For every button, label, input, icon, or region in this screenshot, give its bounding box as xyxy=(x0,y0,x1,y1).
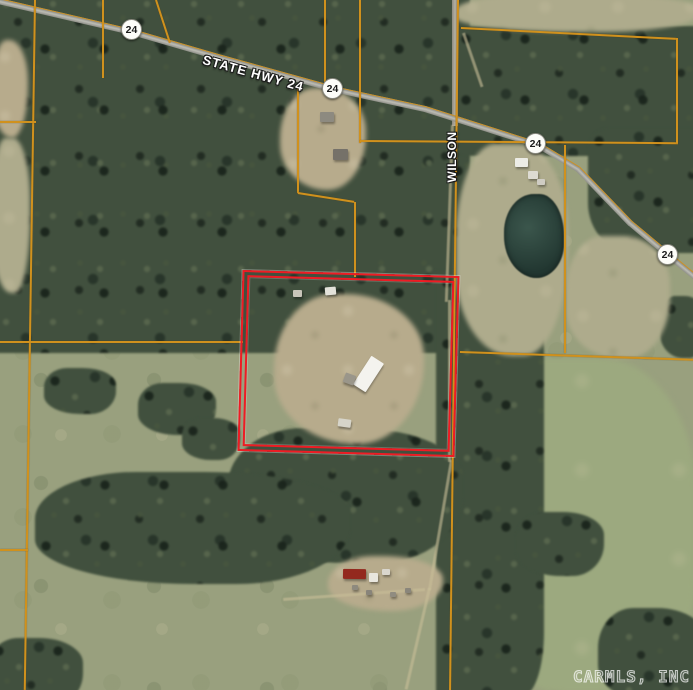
street-label: WILSON xyxy=(445,127,459,187)
pond xyxy=(504,194,564,278)
building xyxy=(352,585,358,590)
parcel-boundary-line xyxy=(297,88,299,193)
building xyxy=(320,112,334,122)
building xyxy=(343,569,366,579)
building xyxy=(382,569,390,575)
parcel-boundary-line xyxy=(0,549,28,551)
aerial-parcel-map[interactable]: 24 24 24 24 STATE HWY 24 WILSON CARMLS, … xyxy=(0,0,693,690)
bare-ground-patch xyxy=(280,88,366,190)
parcel-boundary-line xyxy=(102,0,104,78)
watermark: CARMLS, INC xyxy=(573,667,690,686)
building xyxy=(528,171,538,179)
route-24-shield-icon: 24 xyxy=(121,19,142,40)
building xyxy=(293,290,302,297)
forest-patch xyxy=(0,638,83,690)
subject-parcel-outline xyxy=(238,270,460,457)
route-24-shield-icon: 24 xyxy=(322,78,343,99)
building xyxy=(338,418,352,428)
building xyxy=(405,588,411,593)
field-patch xyxy=(566,236,670,358)
parcel-boundary-line xyxy=(0,121,36,123)
route-number: 24 xyxy=(327,83,339,95)
tree-cluster xyxy=(44,368,116,414)
building xyxy=(390,592,396,597)
building xyxy=(515,158,528,167)
route-number: 24 xyxy=(662,249,674,261)
parcel-boundary-line xyxy=(564,145,566,353)
parcel-boundary-line xyxy=(354,202,356,277)
building xyxy=(333,149,348,160)
route-24-shield-icon: 24 xyxy=(657,244,678,265)
route-number: 24 xyxy=(126,24,138,36)
highway-road-segment xyxy=(676,260,693,284)
tree-cluster xyxy=(182,418,240,460)
forest-patch xyxy=(516,512,604,576)
route-number: 24 xyxy=(530,138,542,150)
building xyxy=(366,590,372,595)
forest-patch xyxy=(35,472,350,584)
building xyxy=(369,573,378,582)
field-patch xyxy=(0,138,30,293)
parcel-boundary-line xyxy=(0,341,243,343)
parcel-boundary-line xyxy=(359,0,361,143)
building xyxy=(537,179,545,185)
route-24-shield-icon: 24 xyxy=(525,133,546,154)
parcel-boundary-line xyxy=(324,0,326,85)
building xyxy=(325,287,337,296)
field-patch xyxy=(455,0,693,32)
parcel-boundary-line xyxy=(676,38,678,143)
